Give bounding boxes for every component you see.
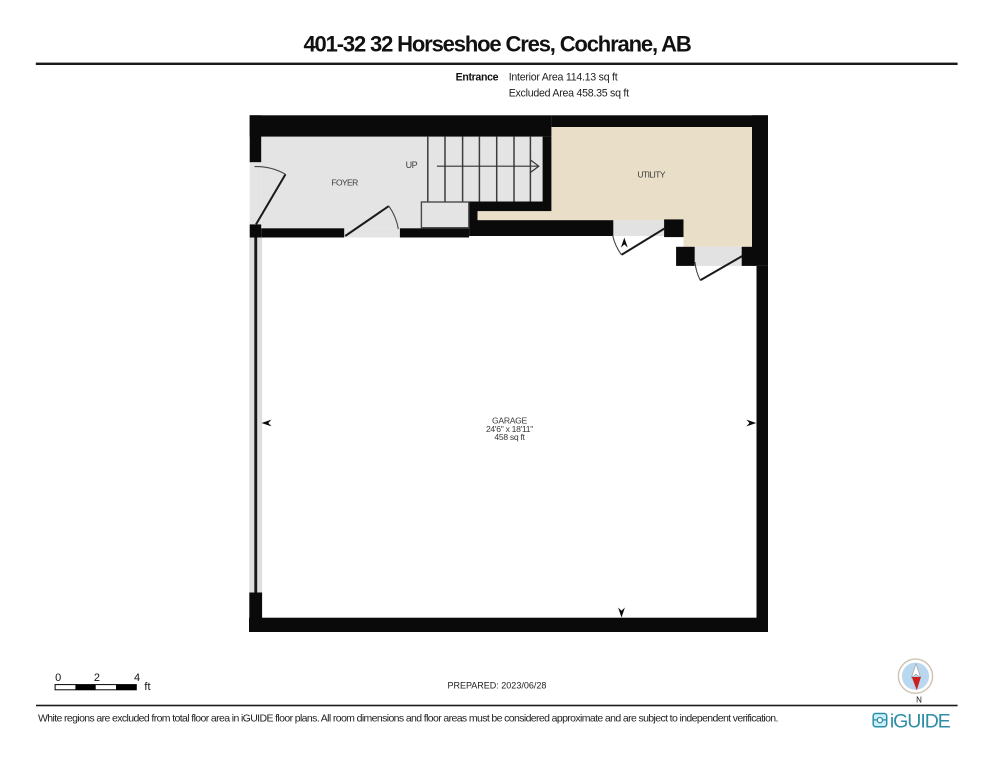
svg-text:UTILITY: UTILITY — [637, 170, 665, 180]
svg-text:iGUIDE: iGUIDE — [890, 710, 951, 732]
svg-text:FOYER: FOYER — [331, 178, 358, 188]
svg-text:ft: ft — [144, 681, 150, 693]
svg-text:Interior Area 114.13 sq ft: Interior Area 114.13 sq ft — [509, 72, 618, 84]
svg-text:401-32 32 Horseshoe Cres, Coch: 401-32 32 Horseshoe Cres, Cochrane, AB — [303, 32, 690, 57]
svg-text:N: N — [916, 696, 922, 705]
svg-text:0: 0 — [55, 672, 61, 684]
svg-text:458 sq ft: 458 sq ft — [494, 432, 525, 442]
svg-text:2: 2 — [94, 672, 100, 684]
svg-text:Entrance: Entrance — [456, 72, 499, 84]
svg-text:White regions are excluded fro: White regions are excluded from total fl… — [38, 713, 778, 725]
svg-text:Excluded Area 458.35 sq ft: Excluded Area 458.35 sq ft — [509, 88, 629, 100]
svg-text:4: 4 — [134, 672, 140, 684]
svg-text:PREPARED: 2023/06/28: PREPARED: 2023/06/28 — [447, 680, 546, 690]
svg-text:UP: UP — [406, 160, 418, 170]
